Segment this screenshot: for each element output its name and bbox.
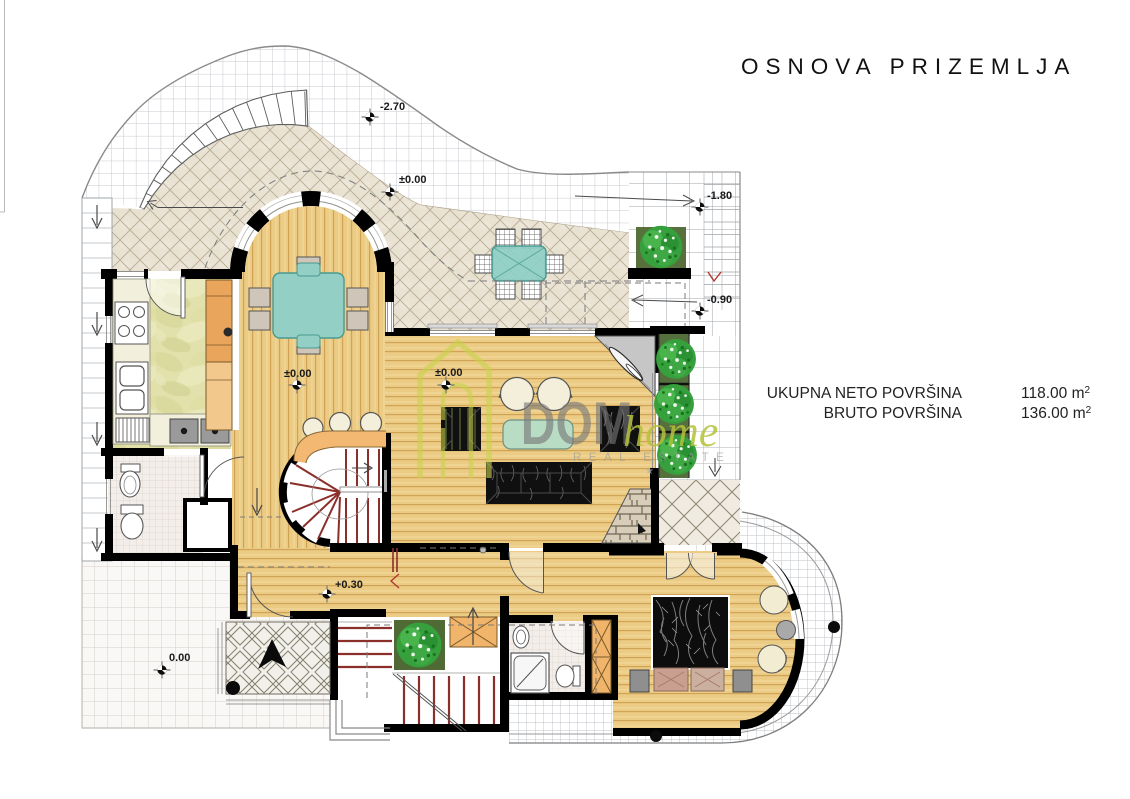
svg-text:★: ★: [645, 466, 654, 477]
svg-text:118.00 m2: 118.00 m2: [1021, 385, 1090, 402]
svg-text:0.00: 0.00: [169, 652, 190, 664]
svg-text:±0.00: ±0.00: [435, 367, 462, 379]
svg-text:BRUTO POVRŠINA: BRUTO POVRŠINA: [824, 405, 963, 422]
svg-text:REAL ESTATE: REAL ESTATE: [573, 452, 731, 464]
svg-text:-0.90: -0.90: [707, 294, 732, 306]
svg-text:+0.30: +0.30: [335, 579, 363, 591]
svg-text:OSNOVA PRIZEMLJA: OSNOVA PRIZEMLJA: [741, 54, 1076, 79]
svg-text:136.00 m2: 136.00 m2: [1021, 405, 1092, 422]
svg-text:±0.00: ±0.00: [399, 174, 426, 186]
svg-text:-1.80: -1.80: [707, 190, 732, 202]
svg-text:DOM: DOM: [521, 390, 633, 457]
svg-text:UKUPNA NETO POVRŠINA: UKUPNA NETO POVRŠINA: [767, 385, 963, 402]
svg-text:home: home: [623, 407, 718, 456]
svg-text:±0.00: ±0.00: [284, 368, 311, 380]
svg-text:-2.70: -2.70: [380, 101, 405, 113]
